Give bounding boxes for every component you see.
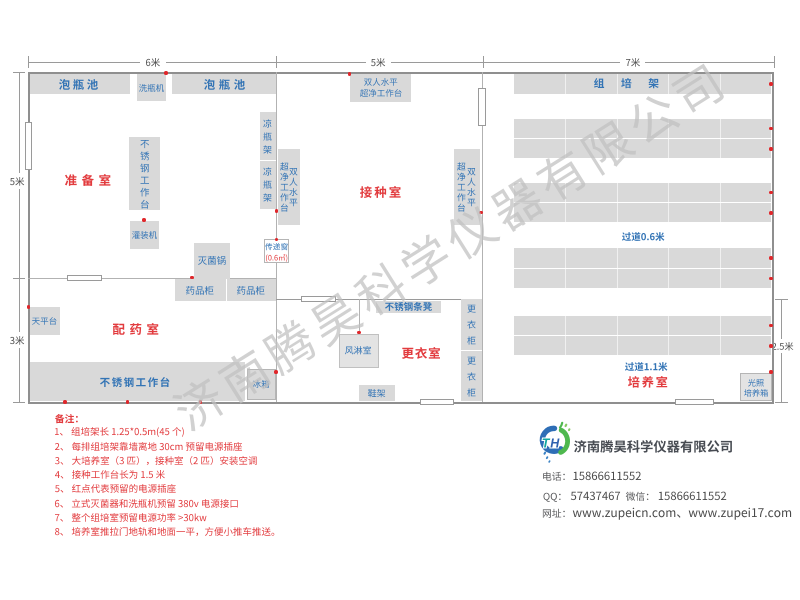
svg-text:H: H (550, 437, 560, 451)
